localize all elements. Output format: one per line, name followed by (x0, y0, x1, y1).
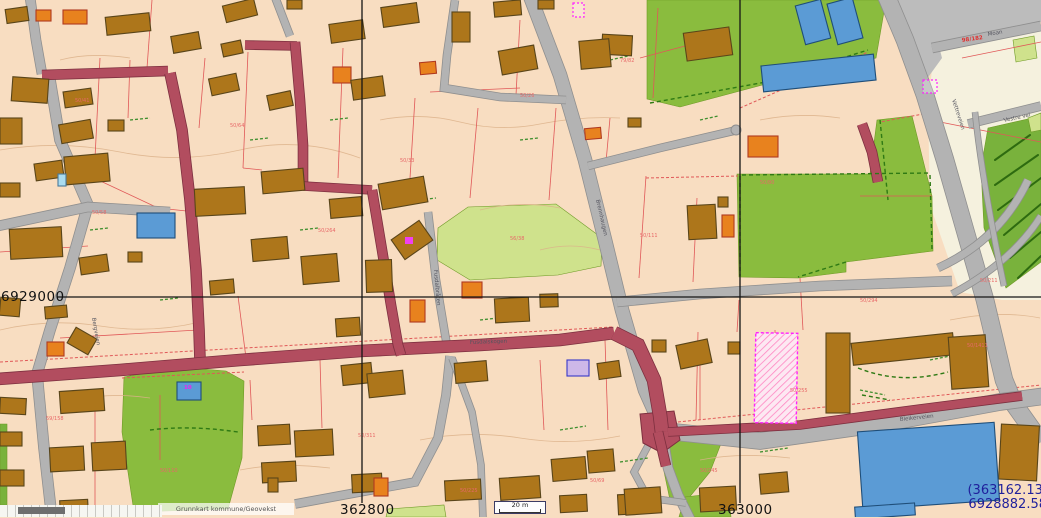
building (0, 470, 24, 486)
building (567, 360, 589, 376)
building (454, 361, 488, 384)
building (335, 317, 360, 337)
grid-label-northing: 6929000 (1, 289, 65, 305)
building (493, 0, 521, 17)
building-outbuilding (585, 127, 602, 139)
building (551, 457, 587, 482)
building (108, 120, 124, 131)
building (91, 441, 126, 471)
building (728, 342, 740, 354)
building (0, 432, 22, 446)
building (301, 253, 339, 284)
building (294, 429, 333, 457)
building-outbuilding (420, 61, 437, 74)
zoning-marker (923, 80, 937, 93)
parcel-number-label: 50/245 (700, 468, 718, 474)
parcel-number-label: 50/311 (358, 433, 376, 439)
building (597, 361, 621, 380)
parcel-number-label: 79/82 (620, 58, 634, 64)
building-outbuilding (374, 478, 388, 496)
building (624, 487, 662, 515)
building-outbuilding (462, 282, 482, 298)
scale-bar-line (499, 509, 541, 513)
parcel-number-label: 50/41 (75, 98, 89, 104)
building (365, 260, 392, 293)
building-outbuilding (333, 67, 351, 83)
building (759, 472, 789, 494)
cursor-coordinates: (363162.13, 6928882.58 (967, 484, 1041, 512)
building-outbuilding (47, 342, 64, 356)
building (540, 294, 558, 308)
building-outbuilding (410, 300, 425, 322)
building (287, 0, 302, 9)
building (105, 13, 151, 36)
building (0, 397, 26, 414)
building (268, 478, 278, 492)
building (59, 388, 104, 413)
measure-ruler (0, 505, 162, 517)
building (329, 197, 363, 219)
building (329, 20, 365, 44)
building (683, 27, 732, 61)
grid-label-easting-362800: 362800 (340, 502, 395, 518)
building (587, 449, 615, 473)
parcel-number-label: 50/33 (400, 158, 414, 164)
building (628, 118, 641, 127)
zoning-marker (573, 3, 584, 17)
building (538, 0, 554, 9)
building (367, 370, 405, 398)
green-area (1013, 36, 1037, 62)
building (64, 153, 110, 185)
zoning-parcel-hatched (754, 333, 798, 424)
building (58, 174, 66, 186)
parcel-number-label: 59/158 (46, 416, 64, 422)
building (128, 252, 142, 262)
building (652, 340, 666, 352)
parcel-number-label: 50/211 (980, 278, 998, 284)
building (0, 183, 20, 197)
parcel-number-label: 50/58 (92, 210, 106, 216)
scale-bar-label: 20 m (512, 502, 529, 508)
building (45, 305, 68, 319)
building (579, 39, 611, 70)
building (9, 227, 62, 260)
parcel-number-label: 56/38 (510, 236, 524, 242)
parcel-number-label: 50/110 (160, 468, 178, 474)
cursor-northing: 6928882.58 (967, 498, 1041, 512)
zoning-marker-solid (405, 237, 413, 244)
road-red (245, 45, 297, 46)
building-magenta-label: 10 (184, 385, 192, 391)
building (381, 3, 419, 28)
scale-bar: 20 m (494, 501, 546, 514)
building (5, 7, 29, 24)
building (261, 461, 296, 483)
parcel-number-label: 50/294 (860, 298, 878, 304)
building (687, 204, 717, 239)
grid-label-easting-363000: 363000 (718, 502, 773, 518)
building-blue (137, 213, 175, 238)
building (494, 297, 529, 323)
cursor-easting: (363162.13, (967, 484, 1041, 498)
building (560, 494, 588, 512)
building (826, 333, 850, 413)
map-canvas[interactable]: 50/4150/6450/3350/2679/8250/8056/3850/26… (0, 0, 1041, 517)
building (499, 476, 540, 501)
building (79, 254, 109, 275)
parcel-number-label: 50/225 (460, 488, 478, 494)
building (194, 187, 245, 217)
map-layers: 50/4150/6450/3350/2679/8250/8056/3850/26… (0, 0, 1041, 517)
building (351, 76, 385, 100)
road-red (42, 71, 168, 75)
parcel-number-label: 50/69 (590, 478, 604, 484)
parcel-number-label: 50/264 (318, 228, 336, 234)
building (999, 424, 1040, 481)
building-outbuilding (63, 10, 87, 24)
building (0, 118, 22, 144)
building (452, 12, 470, 42)
building (251, 236, 289, 261)
parcel-number-label: 50/111 (640, 233, 658, 239)
parcel-number-label: 50/64 (230, 123, 244, 129)
building (718, 197, 728, 207)
building (257, 424, 290, 446)
building-outbuilding (748, 136, 778, 157)
building (49, 446, 84, 472)
building (11, 77, 49, 103)
building-outbuilding (722, 215, 734, 237)
building (209, 279, 234, 295)
building-outbuilding (36, 10, 51, 21)
parcel-number-label: 50/255 (790, 388, 808, 394)
map-attribution: Grunnkart kommune/Geovekst (158, 503, 294, 515)
parcel-number-label: 50/80 (760, 180, 774, 186)
measure-ruler-segment (18, 507, 65, 514)
parcel-number-label: 50/26 (520, 93, 534, 99)
parcel-number-label: 50/1411 (967, 343, 988, 349)
building (261, 168, 305, 194)
